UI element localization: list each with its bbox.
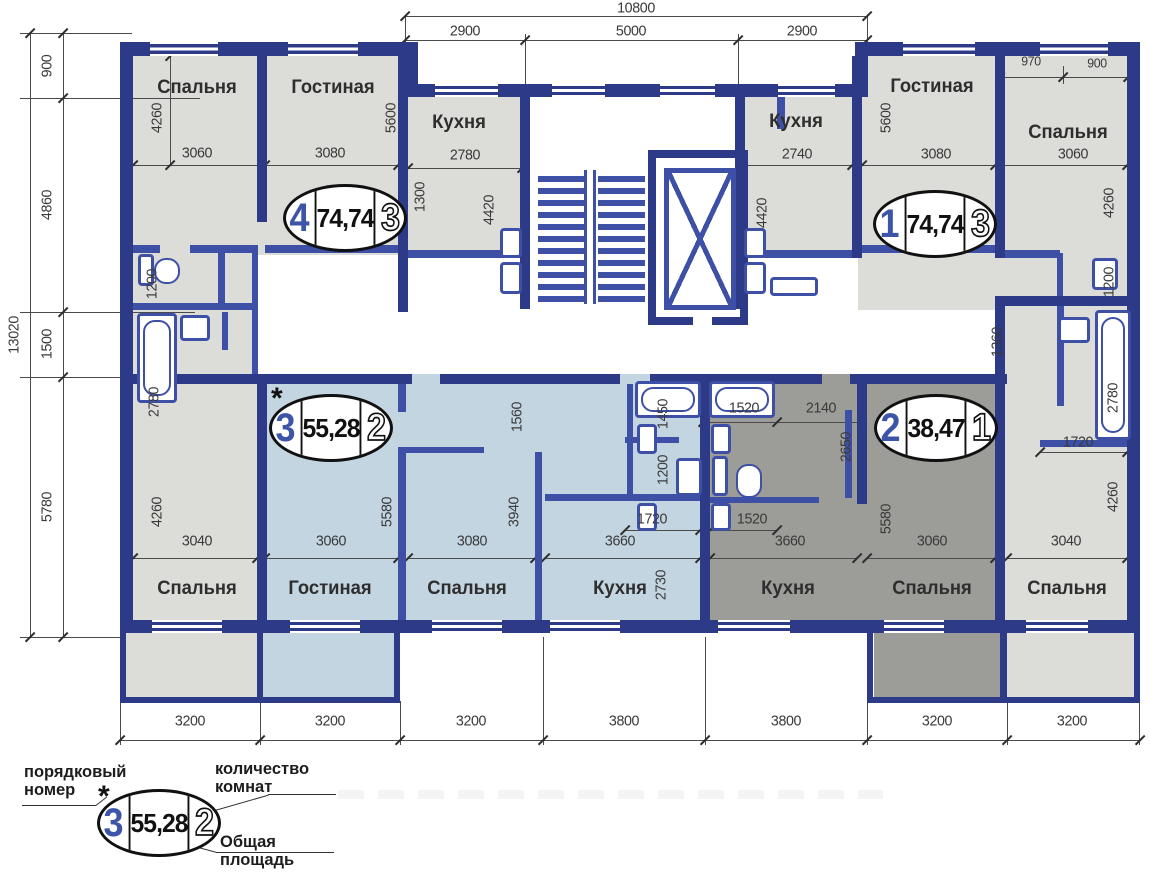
room-label: Гостиная (291, 77, 374, 99)
dimension-line (625, 530, 700, 531)
dimension-line (1000, 77, 1130, 78)
wall (712, 317, 748, 325)
dimension-line (545, 558, 700, 559)
dimension-label: 3080 (457, 533, 487, 550)
wall (852, 56, 862, 258)
stair-step (598, 260, 645, 266)
plumbing-fixture (711, 503, 731, 531)
legend-area-label: Общая площадь (220, 833, 327, 869)
faint-watermark-smudge (338, 790, 883, 799)
legend-example-oval: 3 55,28 2 (97, 789, 221, 857)
plumbing-fixture (500, 262, 522, 294)
wall (257, 56, 267, 222)
dimension-label: 3800 (609, 713, 639, 730)
plumbing-fixture (1101, 317, 1125, 433)
legend-leader-line (22, 805, 96, 806)
dimension-label: 1200 (655, 455, 672, 485)
dimension-label: 1520 (737, 511, 767, 528)
stair-step (598, 248, 645, 254)
dimension-label: 4420 (481, 195, 498, 225)
plumbing-fixture (1058, 317, 1090, 343)
stair-step (538, 212, 586, 218)
window (660, 84, 715, 97)
dimension-line (705, 637, 706, 745)
dimension-label: 970 (1021, 54, 1040, 69)
stair-step (538, 296, 586, 302)
apartment-stamp: 174,743 (873, 190, 997, 258)
dimension-label: 4260 (149, 497, 166, 527)
partition-wall (222, 312, 228, 350)
dimension-label: 2900 (787, 23, 817, 40)
wall (120, 633, 126, 703)
room-label: Кухня (761, 578, 815, 600)
stair-step (598, 284, 645, 290)
dimension-label: 1200 (144, 269, 161, 299)
dimension-label: 900 (39, 55, 56, 78)
dimension-label: 5580 (878, 504, 895, 534)
dimension-label: 1450 (655, 399, 672, 429)
dimension-label: 4420 (754, 198, 771, 228)
dimension-label: 2650 (838, 432, 855, 462)
dimension-label: 1520 (729, 400, 759, 417)
legend-apartment-area: 55,28 (129, 792, 190, 854)
wall (1134, 633, 1140, 703)
window (432, 620, 502, 633)
dimension-label: 2740 (782, 146, 812, 163)
dimension-label: 3060 (182, 145, 212, 162)
room-label: Гостиная (288, 578, 371, 600)
window (903, 42, 975, 56)
stair-step (598, 296, 645, 302)
dimension-label: 1500 (39, 329, 56, 359)
wall (120, 42, 133, 633)
apartment-area: 74,74 (905, 193, 966, 255)
stair-step (538, 272, 586, 278)
wall (394, 633, 400, 703)
dimension-label: 3040 (1051, 533, 1081, 550)
dimension-label: 3800 (771, 713, 801, 730)
dimension-line (525, 34, 526, 84)
apartment-number: 1 (877, 193, 901, 255)
stair-step (538, 176, 586, 182)
partition-wall (252, 253, 258, 375)
room-label: Спальня (157, 578, 237, 600)
room-label: Спальня (427, 578, 507, 600)
stair-step (538, 200, 586, 206)
room-count: 3 (968, 193, 992, 255)
plumbing-fixture (180, 315, 210, 341)
dimension-label: 2780 (1105, 383, 1122, 413)
stair-stringer (593, 170, 596, 304)
stair-step (598, 200, 645, 206)
window (1040, 42, 1108, 56)
apartment-area: 74,74 (315, 187, 376, 249)
room-label: Гостиная (890, 76, 973, 98)
stair-step (598, 188, 645, 194)
wall (257, 374, 267, 626)
dimension-line (867, 558, 995, 559)
room-count: 1 (969, 397, 993, 459)
dimension-label: 5600 (383, 103, 400, 133)
dimension-line (1007, 558, 1127, 559)
stair-step (538, 224, 586, 230)
partition-wall (190, 245, 258, 253)
window (1026, 620, 1088, 633)
wall (995, 296, 1140, 306)
dimension-label: 13020 (6, 316, 23, 354)
partition-wall (133, 303, 258, 310)
window (778, 84, 835, 97)
dimension-line (20, 33, 132, 34)
stair-step (598, 236, 645, 242)
stair-step (598, 212, 645, 218)
dimension-label: 2780 (450, 147, 480, 164)
room-label: Кухня (769, 111, 823, 133)
dimension-line (703, 422, 863, 423)
room-fill (1007, 633, 1134, 697)
room-label: Кухня (593, 578, 647, 600)
wall (120, 620, 1140, 633)
partition-wall (398, 447, 406, 632)
wall (850, 374, 1007, 384)
wall (648, 317, 693, 325)
stair-step (538, 248, 586, 254)
dimension-line (30, 33, 31, 637)
dimension-line (170, 56, 171, 165)
plumbing-fixture (736, 464, 762, 498)
apartment-star: * (271, 382, 283, 416)
window (550, 620, 620, 633)
wall (398, 56, 408, 312)
window (152, 620, 222, 633)
apartment-number: 2 (878, 397, 902, 459)
dimension-label: 3200 (922, 713, 952, 730)
plumbing-fixture (711, 424, 731, 454)
legend-rooms-label: количество комнат (215, 760, 322, 796)
dimension-label: 3200 (175, 713, 205, 730)
legend-leader-line (216, 852, 334, 853)
dimension-label: 4260 (149, 103, 166, 133)
wall (440, 374, 620, 384)
plumbing-fixture (770, 277, 818, 296)
dimension-label: 2900 (450, 23, 480, 40)
dimension-line (710, 558, 857, 559)
dimension-label: 5000 (616, 23, 646, 40)
dimension-label: 3080 (315, 145, 345, 162)
wall (1000, 633, 1007, 703)
dimension-label: 1720 (1063, 434, 1093, 451)
dimension-line (63, 33, 64, 637)
wall (648, 150, 656, 325)
dimension-label: 2730 (653, 570, 670, 600)
dimension-label: 1720 (637, 511, 667, 528)
dimension-label: 1360 (989, 327, 1006, 357)
dimension-line (742, 165, 852, 166)
dimension-line (405, 40, 867, 41)
dimension-label: 5780 (39, 492, 56, 522)
plumbing-fixture (676, 458, 702, 496)
plumbing-fixture (744, 228, 766, 258)
window (718, 620, 790, 633)
room-label: Спальня (1028, 122, 1108, 144)
dimension-label: 5580 (379, 497, 396, 527)
dimension-line (133, 558, 257, 559)
dimension-label: 3200 (1057, 713, 1087, 730)
partition-wall (1005, 250, 1060, 258)
wall (867, 633, 873, 703)
dimension-label: 3200 (456, 713, 486, 730)
plumbing-fixture (143, 320, 171, 396)
room-label: Спальня (157, 77, 237, 99)
stair-step (538, 236, 586, 242)
dimension-label: 4260 (1105, 482, 1122, 512)
apartment-stamp: 238,471 (874, 394, 998, 462)
dimension-label: 900 (1087, 56, 1106, 71)
floor-plan: порядковый номер количество комнат Общая… (0, 0, 1150, 872)
wall (257, 633, 263, 703)
window (884, 620, 944, 633)
dimension-label: 3200 (315, 713, 345, 730)
dimension-line (738, 34, 739, 84)
dimension-label: 5600 (878, 103, 895, 133)
dimension-label: 3060 (917, 533, 947, 550)
window (435, 84, 498, 97)
room-count: 3 (378, 187, 402, 249)
stair-step (538, 188, 586, 194)
apartment-area: 38,47 (906, 397, 967, 459)
apartment-stamp: 474,743 (283, 184, 407, 252)
dimension-label: 2780 (146, 387, 163, 417)
apartment-stamp: 355,282 (269, 394, 393, 462)
room-label: Спальня (1027, 578, 1107, 600)
stair-stringer (584, 170, 587, 304)
wall (648, 150, 748, 158)
elevator-shaft (664, 168, 736, 310)
dimension-label: 3660 (775, 533, 805, 550)
plumbing-fixture (500, 228, 522, 258)
dimension-line (408, 558, 535, 559)
legend-apartment-number: 3 (101, 792, 125, 854)
dimension-label: 3040 (182, 533, 212, 550)
room-fill (263, 633, 394, 697)
dimension-label: 10800 (617, 0, 655, 17)
room-label: Кухня (432, 112, 486, 134)
dimension-line (1040, 452, 1127, 453)
dimension-label: 4260 (1101, 188, 1118, 218)
stair-step (598, 176, 645, 182)
partition-wall (398, 384, 406, 412)
dimension-label: 3060 (1058, 146, 1088, 163)
dimension-label: 3940 (506, 497, 523, 527)
window (290, 620, 360, 633)
dimension-line (408, 168, 522, 169)
legend-room-count: 2 (192, 792, 216, 854)
plumbing-fixture (744, 262, 766, 294)
partition-wall (133, 245, 160, 253)
dimension-line (543, 637, 544, 745)
room-fill (126, 633, 257, 697)
stair-step (538, 260, 586, 266)
dimension-line (120, 740, 1140, 741)
wall (857, 374, 867, 504)
dimension-line (20, 637, 125, 638)
dimension-label: 2140 (806, 400, 836, 417)
dimension-label: 3080 (921, 146, 951, 163)
apartment-area: 55,28 (301, 397, 362, 459)
legend-leader-line (268, 794, 336, 795)
dimension-label: 1300 (412, 182, 429, 212)
stair-step (538, 284, 586, 290)
apartment-number: 4 (287, 187, 311, 249)
partition-wall (535, 452, 542, 632)
plumbing-fixture (712, 456, 728, 496)
dimension-label: 1560 (509, 402, 526, 432)
room-count: 2 (364, 397, 388, 459)
stair-step (598, 224, 645, 230)
window (552, 84, 605, 97)
room-fill (874, 633, 1000, 697)
dimension-label: 3060 (316, 533, 346, 550)
dimension-label: 4860 (39, 190, 56, 220)
dimension-label: 3660 (605, 533, 635, 550)
window (288, 42, 358, 56)
window (150, 42, 218, 56)
room-label: Спальня (892, 578, 972, 600)
dimension-line (265, 558, 398, 559)
stair-step (598, 272, 645, 278)
partition-wall (402, 447, 484, 453)
partition-wall (218, 253, 225, 310)
dimension-label: 1200 (1101, 267, 1118, 297)
